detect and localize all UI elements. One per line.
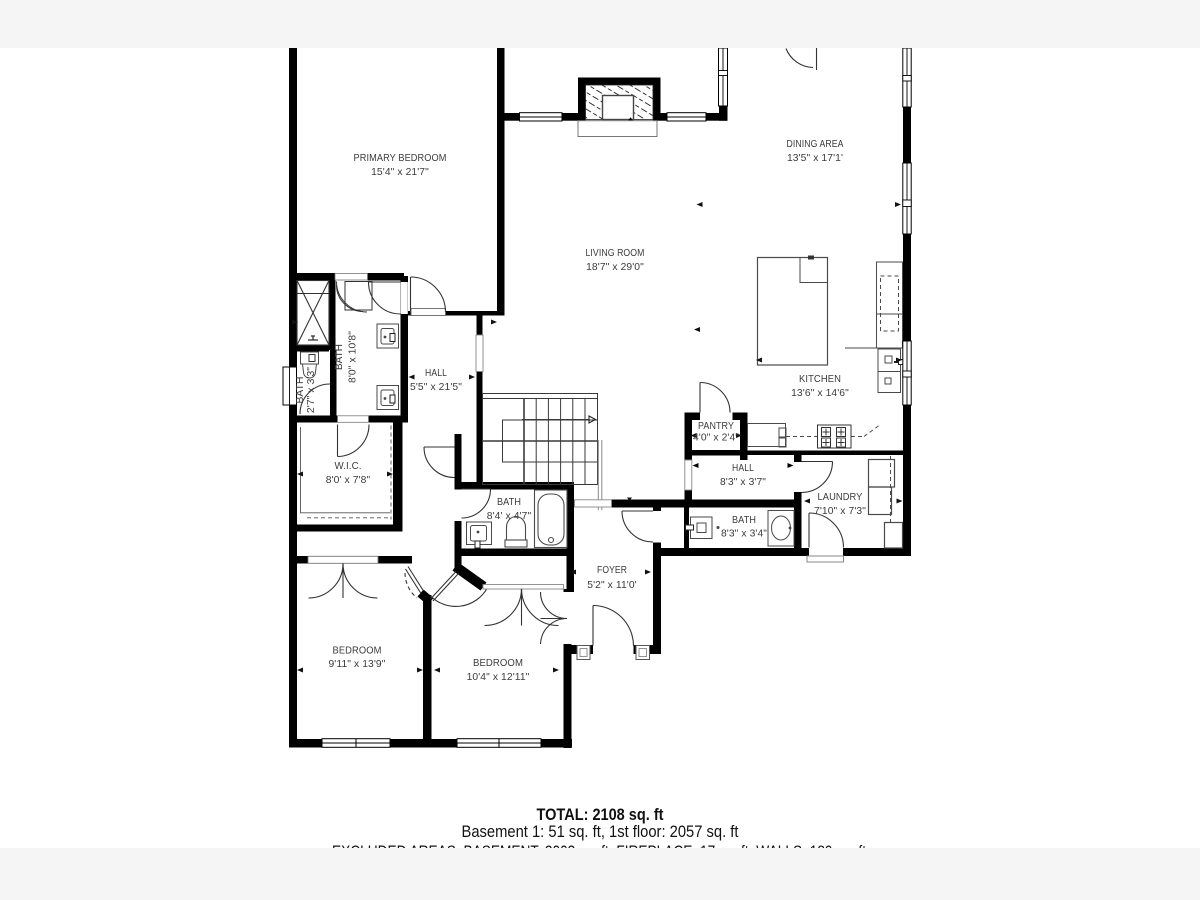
svg-text:8'0" x 10'8": 8'0" x 10'8"	[348, 331, 359, 383]
svg-text:5'2" x 11'0': 5'2" x 11'0'	[587, 580, 637, 591]
svg-text:BATH: BATH	[497, 497, 521, 508]
svg-text:PANTRY: PANTRY	[698, 421, 734, 432]
svg-text:8'0' x 7'8": 8'0' x 7'8"	[326, 475, 371, 486]
svg-text:DINING AREA: DINING AREA	[787, 139, 844, 150]
svg-text:8'3" x 3'7": 8'3" x 3'7"	[720, 477, 766, 488]
svg-text:LIVING ROOM: LIVING ROOM	[586, 248, 645, 259]
svg-text:2'7" x 3'3": 2'7" x 3'3"	[306, 367, 317, 413]
svg-text:PRIMARY BEDROOM: PRIMARY BEDROOM	[354, 153, 447, 164]
svg-text:7'10" x 7'3": 7'10" x 7'3"	[814, 506, 866, 517]
svg-text:4'0" x 2'4": 4'0" x 2'4"	[693, 433, 739, 444]
svg-text:BEDROOM: BEDROOM	[333, 646, 382, 657]
svg-text:8'3" x 3'4": 8'3" x 3'4"	[721, 529, 767, 540]
svg-text:5'5" x 21'5": 5'5" x 21'5"	[410, 382, 462, 393]
svg-text:BATH: BATH	[334, 344, 345, 370]
svg-text:LAUNDRY: LAUNDRY	[818, 492, 863, 503]
svg-text:9'11" x 13'9": 9'11" x 13'9"	[328, 659, 385, 670]
svg-text:FOYER: FOYER	[597, 565, 627, 576]
svg-text:HALL: HALL	[425, 368, 447, 379]
svg-text:BATH: BATH	[732, 515, 756, 526]
svg-text:BATH: BATH	[295, 376, 306, 403]
svg-text:W.I.C.: W.I.C.	[335, 461, 362, 472]
svg-text:15'4" x 21'7": 15'4" x 21'7"	[371, 167, 429, 178]
svg-text:BEDROOM: BEDROOM	[473, 658, 523, 669]
svg-text:Basement 1: 51 sq. ft, 1st flo: Basement 1: 51 sq. ft, 1st floor: 2057 s…	[462, 822, 739, 841]
svg-text:13'6" x 14'6": 13'6" x 14'6"	[791, 388, 849, 399]
svg-text:13'5" x 17'1': 13'5" x 17'1'	[787, 153, 843, 164]
svg-text:8'4' x 4'7": 8'4' x 4'7"	[487, 511, 532, 522]
svg-text:HALL: HALL	[732, 463, 754, 474]
svg-text:10'4" x 12'11": 10'4" x 12'11"	[467, 672, 530, 683]
svg-text:KITCHEN: KITCHEN	[799, 374, 841, 385]
svg-text:18'7" x 29'0": 18'7" x 29'0"	[586, 262, 644, 273]
